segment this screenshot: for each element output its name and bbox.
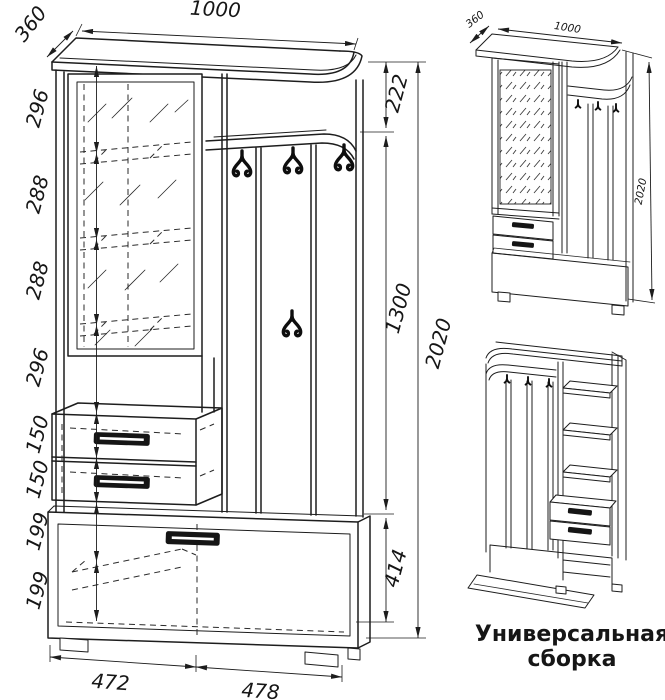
iso-view-standard: 1000 360 2020 bbox=[464, 9, 655, 315]
caption-line2: сборка bbox=[527, 647, 616, 672]
iso-hook bbox=[547, 379, 552, 387]
dim-left: 296 bbox=[21, 87, 54, 130]
iso2-hook-section bbox=[486, 364, 553, 552]
iso-foot bbox=[556, 586, 566, 594]
mirror-door bbox=[68, 74, 202, 356]
iso-dim-depth: 360 bbox=[464, 9, 487, 31]
iso-dim-height: 2020 bbox=[633, 177, 650, 206]
hook-panel bbox=[222, 74, 363, 517]
drawer-handle bbox=[94, 432, 150, 446]
open-flap bbox=[468, 575, 594, 608]
coat-hook bbox=[335, 145, 352, 170]
dim-total-height: 2020 bbox=[420, 315, 456, 370]
dim-right: 1300 bbox=[380, 280, 416, 335]
drawing-canvas: 1000 360 296 288 288 296 150 150 199 199 bbox=[0, 0, 665, 700]
dim-left: 288 bbox=[21, 173, 54, 216]
main-front-view: 1000 360 296 288 288 296 150 150 199 199 bbox=[9, 0, 476, 700]
caption-line1: Универсальная bbox=[475, 622, 665, 647]
iso-foot bbox=[612, 305, 624, 315]
coat-hook bbox=[284, 148, 301, 173]
dim-right: 222 bbox=[380, 72, 413, 115]
centre-divider bbox=[202, 356, 214, 412]
foot bbox=[305, 652, 338, 667]
iso1-bottom-cabinet bbox=[492, 248, 630, 315]
iso2-shelf-column bbox=[550, 352, 626, 560]
iso-hook bbox=[614, 104, 619, 112]
dim-top-width: 1000 bbox=[189, 0, 241, 22]
iso1-hook-section bbox=[562, 52, 633, 302]
foot bbox=[348, 648, 360, 660]
left-side-panel bbox=[56, 70, 64, 512]
iso-hook bbox=[505, 375, 510, 383]
drawer-handle bbox=[94, 475, 150, 489]
iso1-mirror bbox=[492, 58, 559, 219]
furniture-assembly-drawing: 1000 360 296 288 288 296 150 150 199 199 bbox=[0, 0, 665, 700]
coat-hook bbox=[233, 151, 250, 176]
drawer-unit bbox=[52, 403, 222, 505]
iso1-drawers bbox=[493, 216, 553, 259]
dim-right: 414 bbox=[379, 547, 412, 590]
iso-hook bbox=[596, 102, 601, 110]
cabinet-hidden-shelf bbox=[66, 549, 344, 632]
top-shelf bbox=[206, 130, 356, 159]
dim-left: 150 bbox=[21, 413, 54, 456]
iso-dim-width: 1000 bbox=[553, 20, 582, 36]
foot bbox=[60, 638, 88, 652]
coat-hook bbox=[283, 311, 300, 336]
iso-hook bbox=[526, 377, 531, 385]
iso-foot bbox=[498, 292, 510, 302]
iso-view-mirrored bbox=[468, 342, 626, 608]
dim-bottom: 478 bbox=[241, 678, 281, 700]
dim-left: 296 bbox=[21, 346, 54, 389]
dim-left: 288 bbox=[21, 259, 54, 302]
dim-top-depth: 360 bbox=[9, 1, 51, 46]
iso2-bottom-open bbox=[468, 545, 622, 608]
iso-foot bbox=[612, 584, 622, 592]
dim-bottom: 472 bbox=[91, 669, 131, 696]
iso-hook bbox=[576, 100, 581, 108]
dim-left: 199 bbox=[21, 569, 54, 612]
dim-left: 199 bbox=[21, 510, 54, 553]
flap-handle bbox=[166, 531, 220, 546]
dim-left: 150 bbox=[21, 458, 54, 501]
